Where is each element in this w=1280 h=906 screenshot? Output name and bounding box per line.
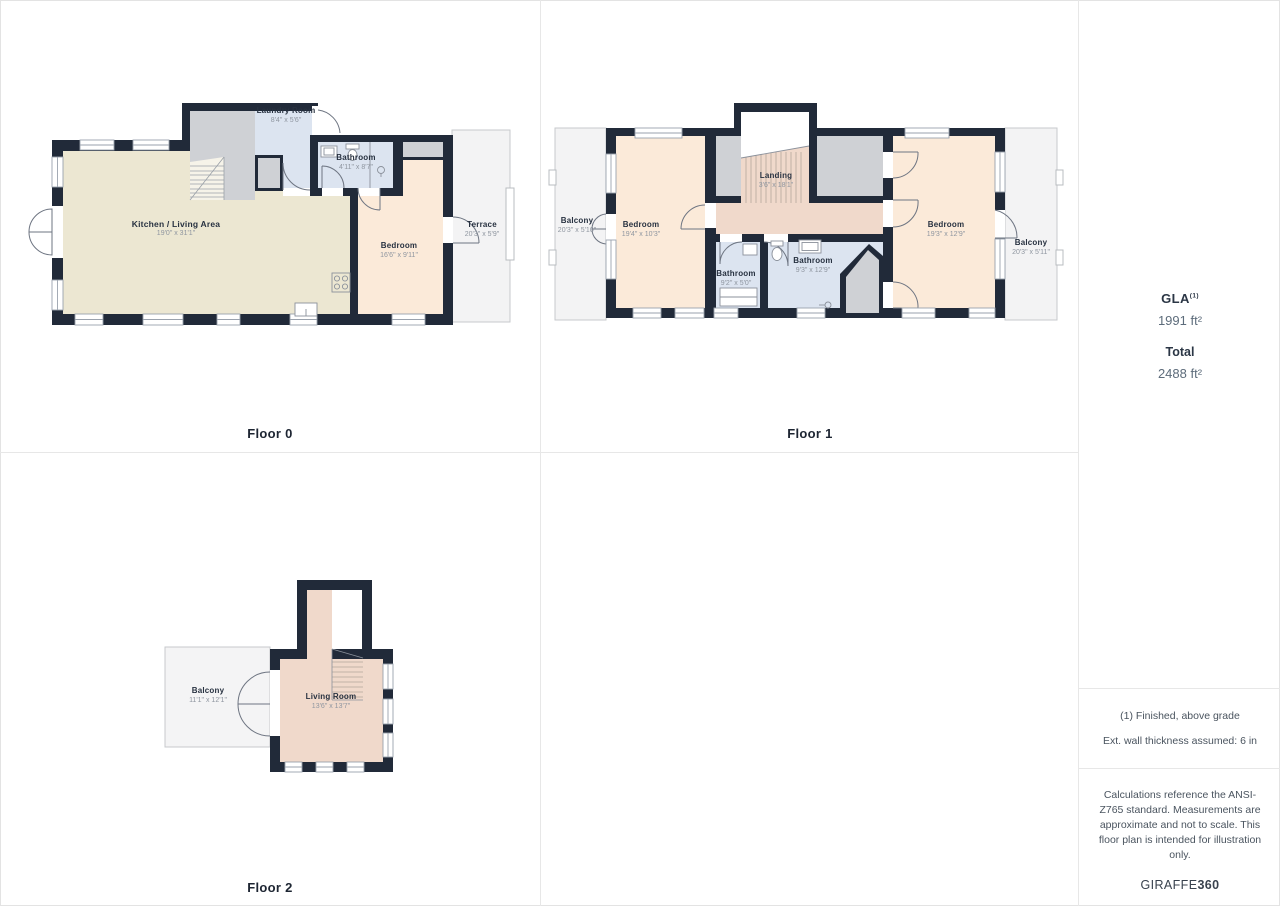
floor2-caption: Floor 2: [0, 880, 540, 895]
divider-vertical-2: [1078, 0, 1079, 906]
room-label-landing: Landing 3'6" x 18'1": [759, 171, 794, 190]
stairwell-void: [741, 112, 809, 146]
room-label-laundry: Laundry Room 8'4" x 5'6": [257, 106, 316, 125]
room-name: Balcony: [558, 216, 596, 226]
note-finished: (1) Finished, above grade: [1120, 710, 1240, 722]
divider-vertical-1: [540, 0, 541, 906]
total-label: Total: [1080, 345, 1280, 359]
room-name: Bedroom: [927, 220, 965, 230]
room-label-bedroom0: Bedroom 16'6" x 9'11": [380, 241, 418, 260]
floor2-plan-svg: [0, 452, 540, 906]
floor0-plan-svg: [0, 0, 540, 452]
floor1-panel: Balcony 20'3" x 5'10" Bedroom 19'4" x 10…: [540, 0, 1080, 452]
room-dims: 13'6" x 13'7": [306, 703, 357, 711]
room-label-bathroom-small: Bathroom 9'2" x 5'0": [716, 269, 755, 288]
room-dims: 16'6" x 9'11": [380, 252, 418, 260]
disclaimer-text: Calculations reference the ANSI-Z765 sta…: [1094, 788, 1266, 863]
room-name: Bathroom: [793, 256, 832, 266]
floor2-panel: Balcony 11'1" x 12'1" Living Room 13'6" …: [0, 452, 540, 906]
room-name: Landing: [759, 171, 794, 181]
room-dims: 19'0" x 31'1": [132, 230, 220, 238]
door-openings: [270, 670, 280, 736]
closet-right: [817, 136, 883, 196]
area-summary: GLA(1) 1991 ft² Total 2488 ft²: [1080, 291, 1280, 381]
room-dims: 4'11" x 8'7": [336, 164, 375, 172]
brand-regular: GIRAFFE: [1140, 878, 1197, 892]
gla-text: GLA: [1161, 291, 1190, 306]
closet-shelf-edge: [403, 157, 443, 160]
note-wall-thickness: Ext. wall thickness assumed: 6 in: [1103, 735, 1257, 747]
room-label-balcony-left: Balcony 20'3" x 5'10": [558, 216, 596, 235]
room-dims: 20'3" x 5'9": [465, 231, 500, 239]
room-label-bedroom-right: Bedroom 19'3" x 12'9": [927, 220, 965, 239]
floor0-panel: Laundry Room 8'4" x 5'6" Bathroom 4'11" …: [0, 0, 540, 452]
floor0-caption: Floor 0: [0, 426, 540, 441]
room-name: Bathroom: [336, 153, 375, 163]
room-label-living: Living Room 13'6" x 13'7": [306, 692, 357, 711]
room-name: Bedroom: [380, 241, 418, 251]
room-dims: 19'3" x 12'9": [927, 231, 965, 239]
room-name: Living Room: [306, 692, 357, 702]
room-label-terrace: Terrace 20'3" x 5'9": [465, 220, 500, 239]
room-name: Balcony: [1012, 238, 1050, 248]
room-name: Bathroom: [716, 269, 755, 279]
divider-horizontal-main: [0, 452, 1078, 453]
room-label-bedroom-left: Bedroom 19'4" x 10'3": [622, 220, 660, 239]
divider-sidebar-2: [1078, 768, 1280, 769]
room-dims: 8'4" x 5'6": [257, 117, 316, 125]
room-name: Kitchen / Living Area: [132, 219, 220, 229]
brand-bold: 360: [1197, 878, 1219, 892]
room-label-bathroom0: Bathroom 4'11" x 8'7": [336, 153, 375, 172]
stairs-icon: [190, 157, 224, 200]
room-dims: 9'2" x 5'0": [716, 280, 755, 288]
summary-sidebar: GLA(1) 1991 ft² Total 2488 ft² (1) Finis…: [1080, 0, 1280, 906]
gla-label: GLA(1): [1080, 291, 1280, 306]
legal-section: Calculations reference the ANSI-Z765 sta…: [1080, 768, 1280, 894]
room-label-balcony-right: Balcony 20'3" x 5'11": [1012, 238, 1050, 257]
stairwell-void: [332, 590, 362, 649]
wall-bathroom-right: [393, 135, 403, 196]
divider-sidebar-1: [1078, 688, 1280, 689]
brand-logo: GIRAFFE360: [1094, 877, 1266, 895]
wall-laundry-bathroom: [310, 135, 318, 196]
closet-shelf: [403, 142, 443, 157]
understairs-closet: [258, 158, 280, 188]
total-value: 2488 ft²: [1080, 366, 1280, 381]
kitchen-sink-icon: [295, 303, 317, 316]
floor1-caption: Floor 1: [540, 426, 1080, 441]
bedroom-floor-upper: [403, 160, 443, 196]
room-dims: 20'3" x 5'10": [558, 227, 596, 235]
landing-floor: [716, 203, 883, 234]
room-dims: 20'3" x 5'11": [1012, 249, 1050, 257]
room-label-bathroom-large: Bathroom 9'3" x 12'9": [793, 256, 832, 275]
room-name: Balcony: [189, 686, 227, 696]
room-name: Laundry Room: [257, 106, 316, 116]
notes-section: (1) Finished, above grade Ext. wall thic…: [1080, 688, 1280, 768]
laundry-corridor-floor: [283, 155, 313, 188]
stairs-column-floor: [307, 590, 332, 659]
gla-value: 1991 ft²: [1080, 313, 1280, 328]
room-label-kitchen: Kitchen / Living Area 19'0" x 31'1": [132, 219, 220, 239]
room-dims: 11'1" x 12'1": [189, 697, 227, 705]
room-dims: 3'6" x 18'1": [759, 182, 794, 190]
room-name: Bedroom: [622, 220, 660, 230]
closet-left: [716, 136, 741, 196]
gla-note-ref: (1): [1190, 293, 1199, 300]
floorplan-page: Laundry Room 8'4" x 5'6" Bathroom 4'11" …: [0, 0, 1280, 906]
room-dims: 9'3" x 12'9": [793, 267, 832, 275]
room-label-balcony2: Balcony 11'1" x 12'1": [189, 686, 227, 705]
room-name: Terrace: [465, 220, 500, 230]
room-dims: 19'4" x 10'3": [622, 231, 660, 239]
